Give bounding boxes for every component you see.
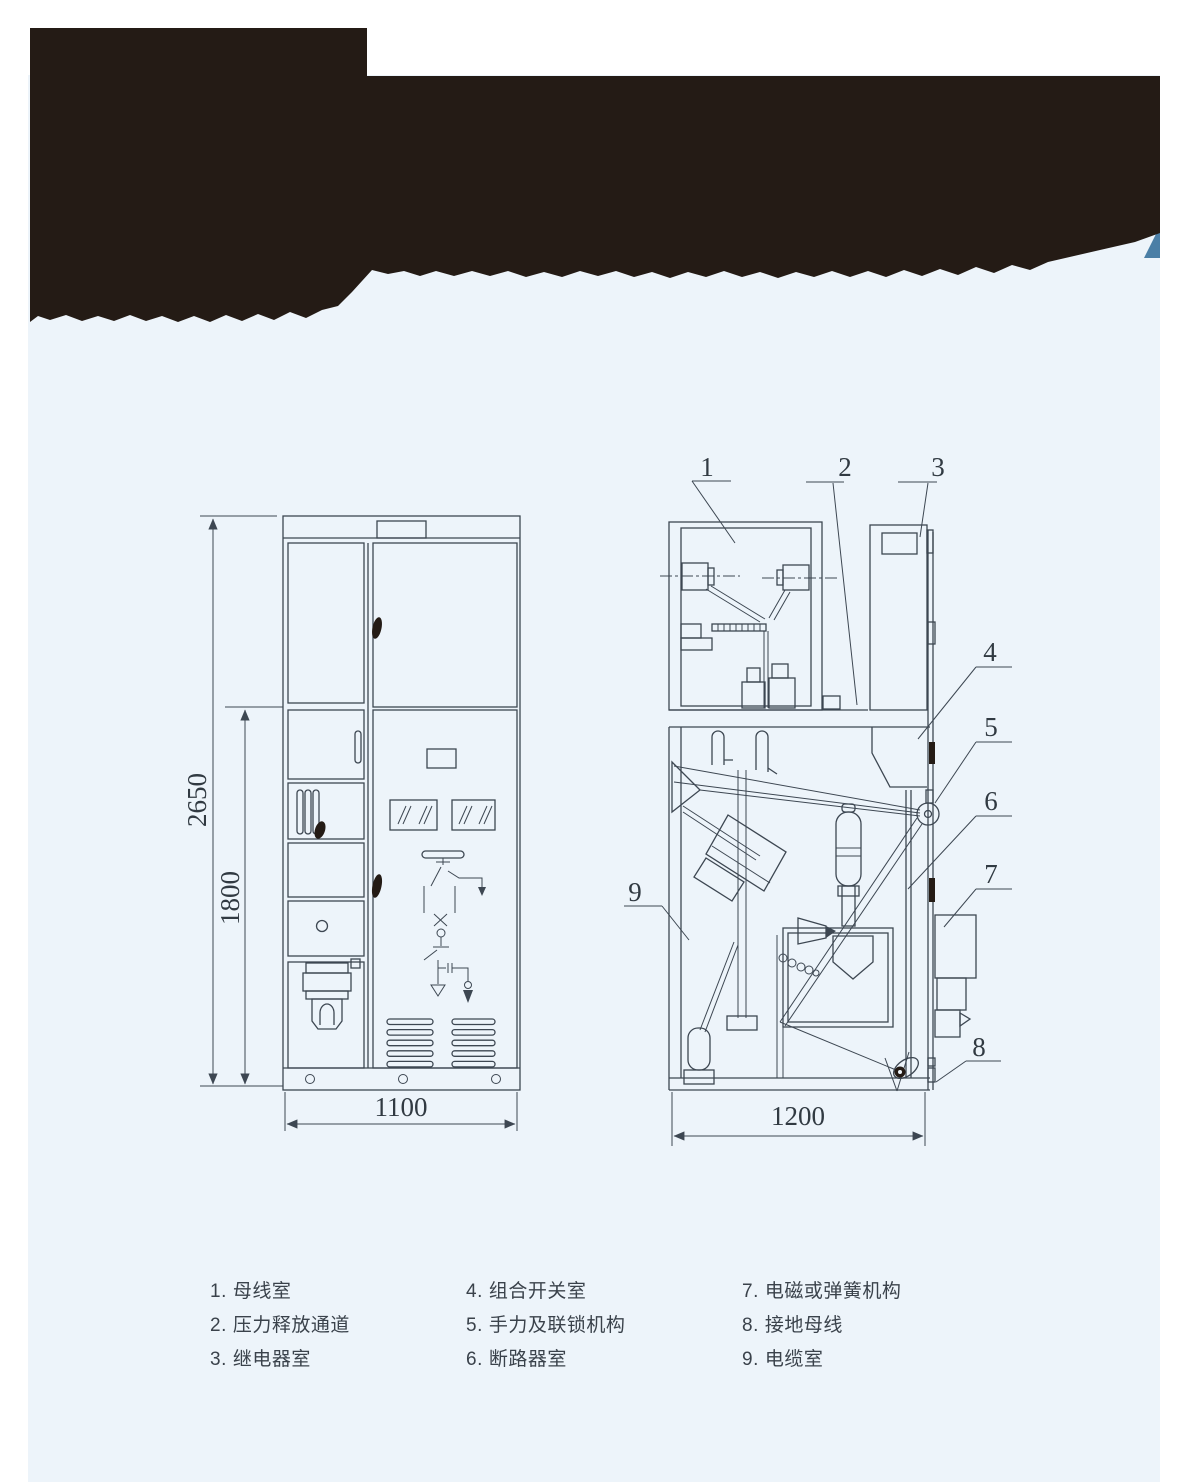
front-right-upper-handle [370,616,383,639]
front-mimic-diagram [422,851,486,1003]
front-dimension-1800: 1800 [215,707,283,1084]
banner-black-shape [30,28,1160,322]
dim-1200: 1200 [771,1101,825,1131]
dim-1100: 1100 [375,1092,428,1122]
callout-7: 7 [984,859,998,889]
callout-3: 3 [931,452,945,482]
legend-item-8: 8.接地母线 [742,1315,901,1349]
legend-item-2: 2.压力释放通道 [210,1315,350,1349]
side-hinge-upper [929,742,935,764]
callout-2: 2 [838,452,852,482]
side-switch-room [872,727,927,787]
front-right-door-upper [373,543,517,707]
side-dimension-1200: 1200 [672,1092,925,1146]
legend-item-3: 3.继电器室 [210,1349,350,1383]
front-view-drawing: 2650 1800 1100 [182,516,520,1131]
dim-1800: 1800 [215,871,245,925]
callout-9: 9 [628,877,642,907]
front-window-right [452,800,495,830]
front-left-panel4 [288,843,364,897]
front-button [317,921,328,932]
side-partition-band [669,696,930,774]
front-left-door-upper [288,543,364,703]
callout-1: 1 [700,452,714,482]
legend-item-7: 7.电磁或弹簧机构 [742,1281,901,1315]
front-left-plug-panel [288,962,364,1068]
front-window-left [390,800,437,830]
front-dimension-2650: 2650 [182,516,283,1086]
callout-6: 6 [984,786,998,816]
front-left-handle [312,820,327,840]
front-left-panel2 [288,710,364,779]
front-indicator [427,749,456,768]
side-door-handle [928,622,935,644]
side-busbar-room [660,522,840,710]
side-operating-mechanism [935,915,976,1037]
technical-drawing: 2650 1800 1100 [0,0,1200,1482]
front-right-lower-handle [370,873,384,898]
legend-item-6: 6.断路器室 [466,1349,625,1383]
callout-8: 8 [972,1032,986,1062]
catalog-page: 2650 1800 1100 [0,0,1200,1482]
side-view-drawing: 1200 1 2 3 4 5 6 7 8 9 [624,452,1012,1146]
front-right-door-lower [373,710,517,1068]
front-left-vent-panel [288,783,364,839]
side-hinge-lower [929,878,935,902]
callout-5: 5 [984,712,998,742]
front-vent-grilles [387,1019,495,1067]
legend-item-9: 9.电缆室 [742,1349,901,1383]
side-lower-compartment [669,727,935,1091]
legend-item-5: 5.手力及联锁机构 [466,1315,625,1349]
front-base [283,1068,520,1084]
front-dimension-1100: 1100 [285,1092,517,1131]
callout-4: 4 [983,637,997,667]
front-left-panel5 [288,901,364,956]
front-nameplate [377,521,426,538]
header-banner [30,28,1160,322]
legend-item-4: 4.组合开关室 [466,1281,625,1315]
dim-2650: 2650 [182,773,212,827]
legend-item-1: 1.母线室 [210,1281,350,1315]
